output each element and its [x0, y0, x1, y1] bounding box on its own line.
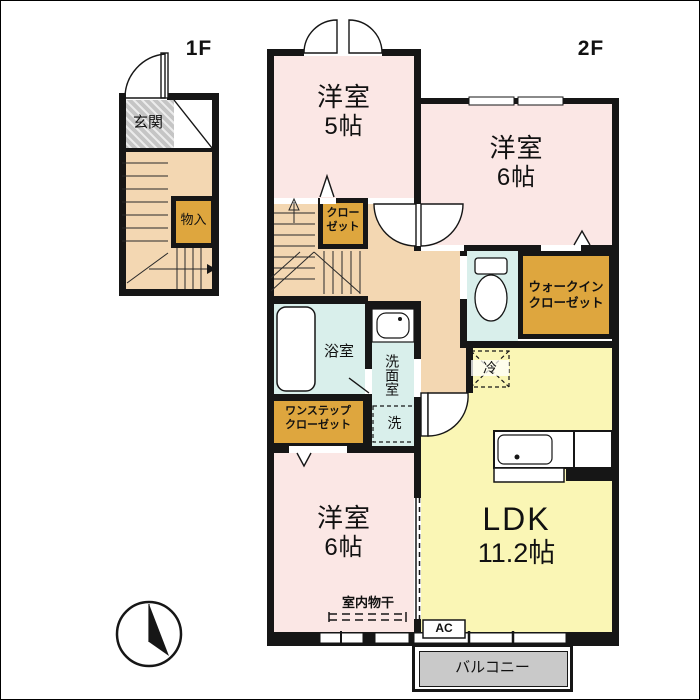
balcony-label: バルコニー: [419, 659, 566, 676]
washroom-label: 洗面室: [384, 345, 400, 405]
entry-door-arc: [125, 54, 165, 98]
washer-label: 洗: [373, 415, 416, 431]
yoshitsu6-upper-name: 洋室: [421, 134, 612, 164]
sliding-door: [416, 498, 420, 621]
walkin-line1: ウォークイン: [518, 279, 614, 295]
floor-plan: 1F 2F 玄関 物入 洋室 5帖 洋室 6帖 洋室 6帖 LDK 11.2帖 …: [0, 0, 700, 700]
ac-label: AC: [423, 622, 465, 636]
bathroom-label: 浴室: [311, 343, 367, 360]
hall-floor-a: [368, 204, 414, 301]
toilet-floor: [467, 251, 518, 341]
hall-floor-c: [421, 341, 466, 393]
indoor-drying-label: 室内物干: [326, 596, 410, 611]
onestep-line2: クローゼット: [270, 418, 366, 432]
yoshitsu6-lower-name: 洋室: [274, 504, 414, 534]
yoshitsu5-label: 洋室 5帖: [274, 83, 414, 140]
floor1-label: 1F: [181, 37, 217, 61]
ldk-name: LDK: [421, 501, 612, 538]
yoshitsu6-lower-size: 6帖: [274, 534, 414, 562]
ldk-size: 11.2帖: [421, 538, 612, 569]
compass-icon: [117, 602, 181, 666]
closet-line1: クロー: [318, 206, 368, 220]
yoshitsu5-name: 洋室: [274, 83, 414, 113]
entry-door-leaf: [161, 53, 168, 98]
walkin-line2: クローゼット: [518, 295, 614, 311]
yoshitsu5-size: 5帖: [274, 113, 414, 141]
yoshitsu6-upper-label: 洋室 6帖: [421, 134, 612, 191]
onestep-closet-label: ワンステップ クローゼット: [270, 404, 366, 433]
ldk-label: LDK 11.2帖: [421, 501, 612, 569]
hall-floor-b: [414, 251, 460, 341]
fridge-label: 冷: [471, 360, 509, 376]
closet-label: クロー ゼット: [318, 206, 368, 235]
closet-line2: ゼット: [318, 220, 368, 234]
yoshitsu6-lower-label: 洋室 6帖: [274, 504, 414, 561]
floor2-label: 2F: [573, 37, 609, 61]
double-door-right-arc: [349, 20, 382, 53]
entry-porch: [174, 100, 212, 149]
yoshitsu6-upper-size: 6帖: [421, 164, 612, 192]
walkin-closet-label: ウォークイン クローゼット: [518, 279, 614, 312]
monoire-label: 物入: [171, 213, 216, 228]
double-door-left-arc: [304, 20, 337, 53]
onestep-line1: ワンステップ: [270, 404, 366, 418]
genkan-label: 玄関: [122, 114, 174, 131]
